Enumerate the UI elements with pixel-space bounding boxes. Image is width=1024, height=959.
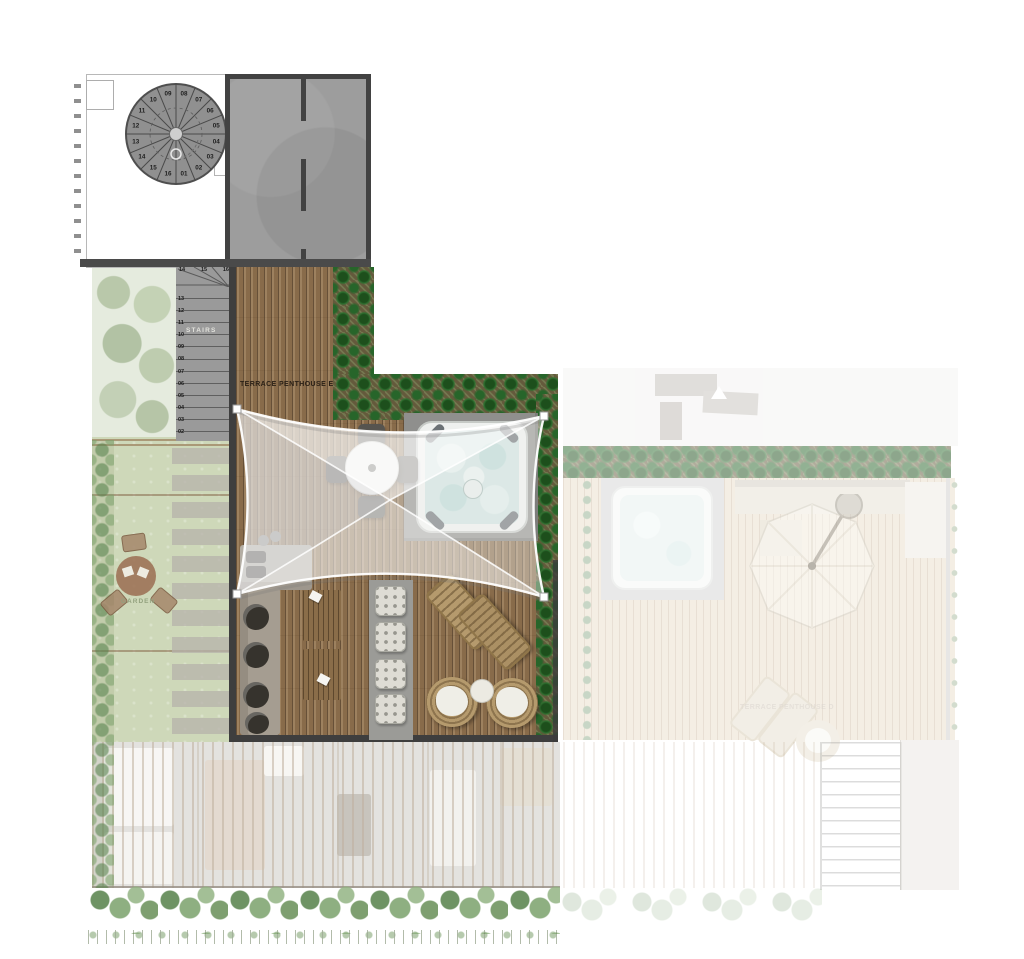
spiral-tread-number: 04 bbox=[213, 138, 220, 145]
stair-tread: 12 bbox=[176, 299, 229, 311]
ghost-staircase-lower bbox=[820, 742, 902, 890]
spiral-tread-number: 08 bbox=[180, 90, 187, 97]
stepping-stones bbox=[172, 448, 230, 734]
chair-cushion bbox=[496, 687, 528, 717]
stair-tread: 06 bbox=[176, 372, 229, 384]
quilted-ottoman bbox=[375, 622, 406, 652]
dining-chair bbox=[358, 496, 385, 518]
spiral-staircase-tread-numbers: 08070605040302011615141312111009 bbox=[124, 82, 228, 186]
stair-tread: 05 bbox=[176, 384, 229, 396]
garden-chair bbox=[121, 532, 147, 552]
ghost-hot-tub-water bbox=[620, 495, 704, 581]
parapet-wall bbox=[80, 259, 371, 267]
shrub-row-faded bbox=[560, 884, 822, 932]
stair-tread: 04 bbox=[176, 396, 229, 408]
spiral-tread-number: 14 bbox=[138, 153, 145, 160]
chair-cushion bbox=[436, 686, 468, 716]
dining-chair bbox=[396, 456, 418, 483]
sofa-pillow bbox=[245, 712, 269, 734]
floor-plan-canvas: TERRACE PENTHOUSE D bbox=[0, 0, 1024, 959]
ghost-planter-strip bbox=[581, 478, 593, 740]
spiral-tread-number: 10 bbox=[150, 96, 157, 103]
ghost-right-border bbox=[946, 478, 950, 740]
winder-tread-numbers: 141516 bbox=[179, 267, 229, 273]
spiral-tread-number: 15 bbox=[150, 165, 157, 172]
spiral-tread-number: 03 bbox=[207, 153, 214, 160]
deck-stool bbox=[258, 535, 269, 546]
rattan-chair bbox=[486, 678, 538, 728]
small-round-table bbox=[470, 679, 494, 703]
garden-table bbox=[116, 556, 156, 596]
garden-trees bbox=[92, 267, 178, 437]
hot-tub-drain bbox=[463, 479, 483, 499]
stair-tread: 09 bbox=[176, 335, 229, 347]
hot-tub-water bbox=[425, 430, 519, 524]
quilted-ottoman bbox=[375, 659, 406, 689]
stair-tread: 02 bbox=[176, 420, 229, 432]
garden-label: GARDEN bbox=[121, 598, 155, 605]
deck-stool bbox=[270, 531, 281, 542]
spiral-tread-number: 07 bbox=[195, 96, 202, 103]
stair-tread: 13 bbox=[176, 287, 229, 299]
deck-left-wall bbox=[229, 267, 236, 742]
spiral-tread-number: 01 bbox=[180, 171, 187, 178]
shrub-stems bbox=[88, 930, 560, 944]
ghost-daybed bbox=[905, 482, 947, 558]
stair-tread: 03 bbox=[176, 408, 229, 420]
quilted-ottoman bbox=[375, 586, 406, 616]
spiral-tread-number: 12 bbox=[132, 123, 139, 130]
roof-inner-wall bbox=[301, 159, 306, 211]
roof-structure bbox=[225, 74, 371, 264]
spiral-tread-number: 05 bbox=[213, 123, 220, 130]
spiral-tread-number: 06 bbox=[207, 108, 214, 115]
hot-tub bbox=[416, 421, 528, 533]
stair-treads: 131211100908070605040302 bbox=[176, 287, 229, 432]
stair-tread: 08 bbox=[176, 347, 229, 359]
parasol-umbrella bbox=[740, 494, 890, 644]
round-dining-table bbox=[345, 441, 399, 495]
sofa-pillow bbox=[243, 642, 269, 668]
sofa-pillow bbox=[243, 604, 269, 630]
ghost-hot-tub bbox=[611, 486, 713, 590]
terrace-penthouse-e-label: TERRACE PENTHOUSE E bbox=[240, 381, 334, 388]
spiral-tread-number: 16 bbox=[164, 171, 171, 178]
ghost-lower-floor-right bbox=[563, 742, 818, 888]
deck-right-wall bbox=[553, 560, 558, 742]
garden-hedge-strip bbox=[92, 440, 114, 888]
stairs-label: STAIRS bbox=[186, 327, 217, 334]
door-box bbox=[86, 80, 114, 110]
rattan-chair bbox=[426, 677, 478, 727]
sofa-cushion bbox=[246, 551, 266, 563]
shrub-row bbox=[88, 882, 560, 934]
terrace-penthouse-d-label: TERRACE PENTHOUSE D bbox=[740, 704, 834, 711]
spiral-tread-number: 09 bbox=[164, 90, 171, 97]
ghost-right-planter-dots bbox=[951, 480, 958, 738]
sofa-pillow bbox=[243, 682, 269, 708]
roof-inner-wall bbox=[301, 249, 306, 259]
ghost-pergola-slats bbox=[92, 742, 560, 888]
stair-tread: 07 bbox=[176, 360, 229, 372]
roof-inner-wall bbox=[301, 79, 306, 121]
spiral-tread-number: 11 bbox=[139, 108, 146, 115]
winder-tread-number: 14 bbox=[179, 267, 185, 273]
spiral-tread-number: 02 bbox=[195, 165, 202, 172]
quilted-ottoman bbox=[375, 694, 406, 724]
ghost-side-strip bbox=[900, 740, 959, 890]
ghost-hot-tub-pad bbox=[601, 478, 724, 600]
winder-tread-number: 15 bbox=[201, 267, 207, 273]
spiral-tread-number: 13 bbox=[132, 138, 139, 145]
ghost-lower-floor bbox=[92, 742, 560, 888]
sofa-cushion bbox=[246, 566, 266, 578]
